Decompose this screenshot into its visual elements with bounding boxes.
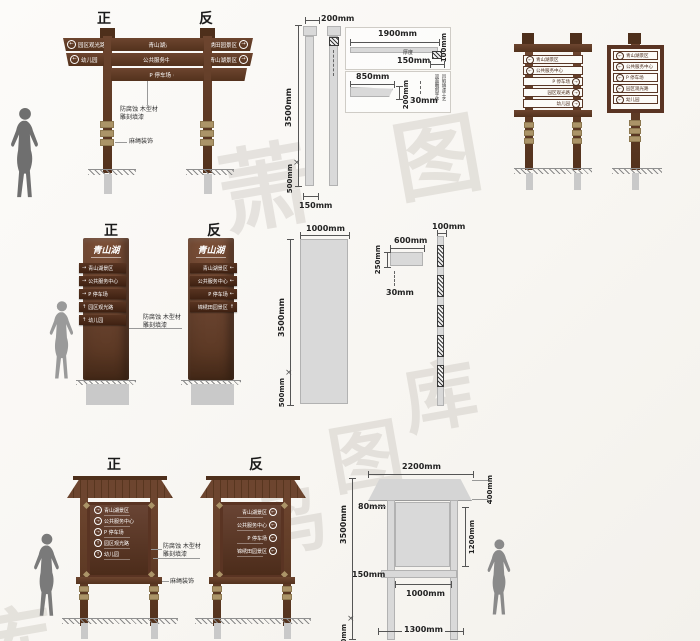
buried-post (214, 623, 221, 639)
arrow-circle-icon: ← (616, 85, 624, 93)
dim-line (390, 245, 425, 252)
totem-profile (300, 239, 348, 404)
buried-post (526, 173, 533, 190)
material-note: 防腐蚀 木型材 雕刻填漆 (120, 106, 158, 122)
panel-row: P 停车场← (227, 534, 281, 544)
rope-band (200, 130, 214, 137)
arrow-circle-icon: ← (616, 74, 624, 82)
roof-profile (368, 479, 472, 501)
arrow-icon: ↑ (82, 317, 86, 323)
arrow-circle-icon: ← (526, 56, 534, 64)
dim-label: 2200mm (402, 462, 441, 471)
totem-base (191, 384, 234, 405)
arrow-circle-icon: → (94, 528, 102, 536)
arrow-icon: → (82, 291, 86, 297)
dim-label: 400mm (486, 475, 494, 504)
arrow-circle-icon: → (572, 78, 580, 86)
dashed-line (420, 81, 421, 94)
slat-label: 幼儿园 (626, 97, 640, 103)
dashed-line (394, 271, 395, 286)
item-label: 公共服务中心 (198, 278, 228, 285)
leader-line (151, 549, 162, 550)
material-note: 防腐蚀 木型材 雕刻填漆 (143, 314, 181, 330)
dim-label: 200mm (321, 14, 354, 23)
process-note-vertical: 凹陷填漆工艺 (440, 74, 446, 108)
leader-line (377, 506, 386, 507)
buried-post (204, 174, 212, 194)
buried-post (632, 173, 639, 190)
rope-band (212, 594, 222, 600)
crossbar (209, 577, 295, 584)
arrow-circle-icon: ← (67, 40, 76, 49)
arrow-circle-icon: → (94, 506, 102, 514)
row-label: 园区观光路 (104, 540, 129, 547)
arrow-icon: ← (230, 265, 234, 271)
human-silhouette (482, 535, 515, 623)
hatch-segment (437, 365, 444, 387)
dim-line (300, 232, 350, 239)
blade-label: 青山湖景区 (209, 56, 237, 64)
sign-slat: ← 园区观光路 (613, 84, 658, 93)
post (283, 498, 291, 626)
row1-back-label: 反 (199, 8, 213, 28)
totem-item: 锦绣田园景区 ↑ (190, 302, 237, 312)
row-label: 幼儿园 (104, 551, 119, 558)
dim-label: 850mm (356, 72, 389, 81)
dim-line (305, 17, 320, 24)
subtext-line (104, 559, 130, 560)
buried-post (81, 623, 88, 639)
hatch-segment (437, 275, 444, 297)
dashed-line (333, 50, 334, 76)
arrow-circle-icon: ← (269, 534, 277, 542)
subtext-line (104, 515, 130, 516)
roof (200, 480, 306, 498)
item-label: 园区观光路 (88, 304, 113, 311)
totem-item: P 停车场 ← (190, 289, 237, 299)
hatch-segment (437, 335, 444, 357)
buried-post (151, 623, 158, 639)
totem-item: ↑ 幼儿园 (79, 315, 126, 325)
direction-blade (172, 68, 204, 81)
row2-front-label: 正 (104, 220, 118, 240)
direction-blade: 青山湖景区 → (211, 53, 253, 66)
totem-logo: 青山湖 (190, 243, 232, 256)
rope-band (149, 594, 159, 600)
totem-item: → 公共服务中心 (79, 276, 126, 286)
buried-post (284, 623, 291, 639)
leader-line (115, 142, 127, 143)
totem-item: → 青山湖景区 (79, 263, 126, 273)
dim-label: 1000mm (406, 589, 445, 598)
totem-base (86, 384, 129, 405)
arrow-icon: ← (230, 278, 234, 284)
rope-band (212, 586, 222, 592)
item-label: P 停车场 (88, 291, 108, 298)
arrow-circle-icon: ↑ (94, 539, 102, 547)
dim-line (395, 581, 452, 588)
direction-blade: 锦绣田园景区 → (211, 38, 253, 51)
dim-label: 600mm (394, 236, 427, 245)
dim-label: 500mm (278, 378, 286, 407)
arrow-icon: → (82, 278, 86, 284)
logo-divider (91, 257, 121, 258)
slat-label: P 停车场 (626, 75, 644, 81)
panel-row: →P 停车场 (94, 528, 148, 538)
arrow-icon: ↑ (230, 304, 234, 310)
material-note: 防腐蚀 木型材 雕刻填漆 (163, 543, 201, 559)
row2-back-label: 反 (207, 220, 221, 240)
panel-row: ↑幼儿园 (94, 550, 148, 560)
slat-label: 公共服务中心 (626, 64, 653, 70)
panel-row: 青山湖景区← (227, 508, 281, 518)
totem-logo: 青山湖 (85, 243, 127, 256)
post-cap (570, 33, 582, 44)
subtext-line (104, 548, 130, 549)
top-crossbar (514, 44, 592, 52)
rope-band (524, 122, 534, 128)
arrow-circle-icon: ← (269, 547, 277, 555)
totem-item: 青山湖景区 ← (190, 263, 237, 273)
direction-blade (168, 53, 204, 66)
row-label: 公共服务中心 (104, 518, 134, 525)
arrow-circle-icon: ← (269, 508, 277, 516)
rope-note: 麻绳装饰 (170, 578, 194, 586)
rope-band (524, 130, 534, 136)
hatch-segment (437, 305, 444, 327)
item-label: 青山湖景区 (203, 265, 228, 272)
sign-panel: →青山湖景区 →公共服务中心 →P 停车场 ↑园区观光路 ↑幼儿园 (87, 502, 151, 578)
sign-slat: ← 青山湖景区 (523, 55, 583, 64)
slat-label: P 停车场 (552, 79, 570, 85)
roof-ridge (73, 476, 167, 480)
row-label: 青山湖景区 (104, 507, 129, 514)
bottom-crossbar (514, 110, 592, 117)
item-label: 青山湖景区 (88, 265, 113, 272)
post-cap (628, 33, 641, 44)
sign-slat: 幼儿园 → (523, 99, 583, 108)
subtext-line (237, 517, 263, 518)
row1-front-label: 正 (97, 8, 111, 28)
blade-label: 园区观光路 (78, 41, 106, 49)
rope-band (149, 586, 159, 592)
slat-label: 园区观光路 (626, 86, 649, 92)
sign-slat: ← 幼儿园 (613, 95, 658, 104)
slat-label: 幼儿园 (557, 101, 571, 107)
crossbar (76, 577, 162, 584)
direction-blade (165, 38, 204, 51)
row3-front-label: 正 (107, 454, 121, 474)
rope-band (282, 594, 292, 600)
arrow-icon: ← (230, 291, 234, 297)
buried-post (104, 174, 112, 194)
dim-label: 150mm (299, 201, 332, 210)
dim-label: 150mm (352, 570, 385, 579)
dim-label: 200mm (402, 80, 410, 109)
blade-label: P 停车场 (149, 71, 171, 79)
slat-label: 青山湖景区 (536, 57, 559, 63)
rope-band (629, 136, 641, 142)
post (150, 498, 158, 626)
subtext-line (237, 543, 263, 544)
panel-row: 公共服务中心← (227, 521, 281, 531)
human-silhouette (2, 106, 46, 204)
rope-band (629, 128, 641, 134)
break-mark: × (285, 368, 293, 378)
rope-band (524, 138, 534, 144)
direction-blade: ← 幼儿园 (66, 53, 104, 66)
rope-band (572, 122, 582, 128)
sign-slat: ← 青山湖景区 (613, 51, 658, 60)
rope-band (200, 139, 214, 146)
dim-label: 3500mm (284, 88, 293, 127)
hatch-icon (432, 51, 442, 59)
dim-label: 3500mm (277, 298, 286, 337)
rope-band (572, 130, 582, 136)
dim-line (287, 239, 294, 406)
break-mark: × (293, 158, 301, 168)
item-label: 公共服务中心 (88, 278, 118, 285)
leader-line (147, 81, 148, 105)
totem-item: 公共服务中心 ← (190, 276, 237, 286)
subtext-line (237, 556, 263, 557)
sign-panel: 青山湖景区← 公共服务中心← P 停车场← 锦绣田园景区← (220, 502, 284, 578)
pole-cap-profile (327, 26, 341, 36)
item-label: 锦绣田园景区 (198, 304, 228, 311)
slat-label: 公共服务中心 (536, 68, 563, 74)
logo-divider (196, 257, 226, 258)
panel-row: 锦绣田园景区← (227, 547, 281, 557)
arrow-icon: ↑ (82, 304, 86, 310)
dim-label: 500mm (286, 164, 294, 193)
arrow-circle-icon: → (572, 89, 580, 97)
rope-band (282, 586, 292, 592)
panel-row: ↑园区观光路 (94, 539, 148, 549)
row-label: 锦绣田园景区 (237, 548, 267, 555)
dim-label: 3500mm (339, 505, 348, 544)
sign-slat: 园区观光路 → (523, 88, 583, 97)
roof-ridge (206, 476, 300, 480)
row-label: P 停车场 (247, 535, 267, 542)
panel-row: →青山湖景区 (94, 506, 148, 516)
human-silhouette (44, 298, 78, 386)
dim-line (430, 61, 445, 68)
dim-line (368, 471, 474, 478)
dim-line (384, 252, 391, 268)
pole-profile (305, 36, 314, 186)
slat-label: 青山湖景区 (626, 53, 649, 59)
dim-label: 500mm (340, 624, 348, 641)
dim-label: 1300mm (402, 625, 445, 634)
subtext-line (104, 526, 130, 527)
arrow-circle-icon: ← (269, 521, 277, 529)
break-mark: × (347, 614, 355, 624)
arrow-circle-icon: → (239, 55, 248, 64)
sign-slat: P 停车场 → (523, 77, 583, 86)
arrow-circle-icon: → (572, 100, 580, 108)
post (203, 36, 212, 173)
arrow-circle-icon: ← (526, 67, 534, 75)
buried-post (574, 173, 581, 190)
sign-slat: ← 公共服务中心 (523, 66, 583, 75)
direction-blade (211, 68, 247, 81)
pole-cap-profile (303, 26, 317, 36)
sign-slat: ← 公共服务中心 (613, 62, 658, 71)
rope-band (100, 130, 114, 137)
rope-band (572, 138, 582, 144)
rope-band (100, 139, 114, 146)
item-label: P 停车场 (208, 291, 228, 298)
rope-note: 麻绳装饰 (129, 138, 153, 146)
board-profile (350, 47, 438, 53)
subtext-line (104, 537, 130, 538)
row-label: 青山湖景区 (242, 509, 267, 516)
rope-band (200, 121, 214, 128)
ground-line (62, 618, 178, 624)
arrow-circle-icon: ↑ (94, 550, 102, 558)
blade-label: 幼儿园 (81, 56, 98, 64)
arrow-circle-icon: ← (616, 52, 624, 60)
totem-item: → P 停车场 (79, 289, 126, 299)
arrow-circle-icon: ← (70, 55, 79, 64)
post (103, 36, 112, 173)
direction-blade: ← 园区观光路 (63, 38, 104, 51)
signage-design-sheet: 萧 图 鸟 图 库 库 正 反 ← 园区观光路 青山湖景区 → ← 幼儿园 公共… (0, 0, 700, 641)
rope-band (79, 594, 89, 600)
process-note-vertical: 双面雕刻字体 (433, 74, 439, 108)
hatch-mark (329, 37, 339, 46)
panel-row: →公共服务中心 (94, 517, 148, 527)
row3-back-label: 反 (249, 454, 263, 474)
dim-line (350, 81, 395, 88)
dim-label: 30mm (386, 288, 414, 297)
panel-profile (395, 502, 450, 567)
dim-label: 1200mm (468, 520, 476, 554)
subtext-line (237, 530, 263, 531)
dim-label: 1900mm (378, 29, 417, 38)
ground-line (195, 618, 311, 624)
dim-label: 150mm (397, 56, 430, 65)
dim-line (303, 193, 319, 200)
rope-band (79, 586, 89, 592)
crossbar-profile (381, 570, 457, 578)
human-silhouette (28, 526, 64, 628)
rope-band (100, 121, 114, 128)
dim-line (350, 39, 440, 46)
row-label: 公共服务中心 (237, 522, 267, 529)
sign-slat: ← P 停车场 (613, 73, 658, 82)
leader-line (162, 581, 169, 582)
item-label: 幼儿园 (88, 317, 103, 324)
arrow-circle-icon: → (239, 40, 248, 49)
rope-band (629, 120, 641, 126)
leader-line (153, 558, 200, 559)
plate-profile (390, 252, 423, 266)
ground-line (88, 169, 136, 175)
dim-label: 250mm (374, 245, 382, 274)
arrow-circle-icon: → (94, 517, 102, 525)
arrow-icon: → (82, 265, 86, 271)
arrow-circle-icon: ← (616, 96, 624, 104)
post-cap (522, 33, 534, 44)
totem-item: ↑ 园区观光路 (79, 302, 126, 312)
slat-label: 园区观光路 (548, 90, 571, 96)
arrow-circle-icon: ← (616, 63, 624, 71)
roof (67, 480, 173, 498)
row-label: P 停车场 (104, 529, 124, 536)
hatch-segment (437, 245, 444, 267)
